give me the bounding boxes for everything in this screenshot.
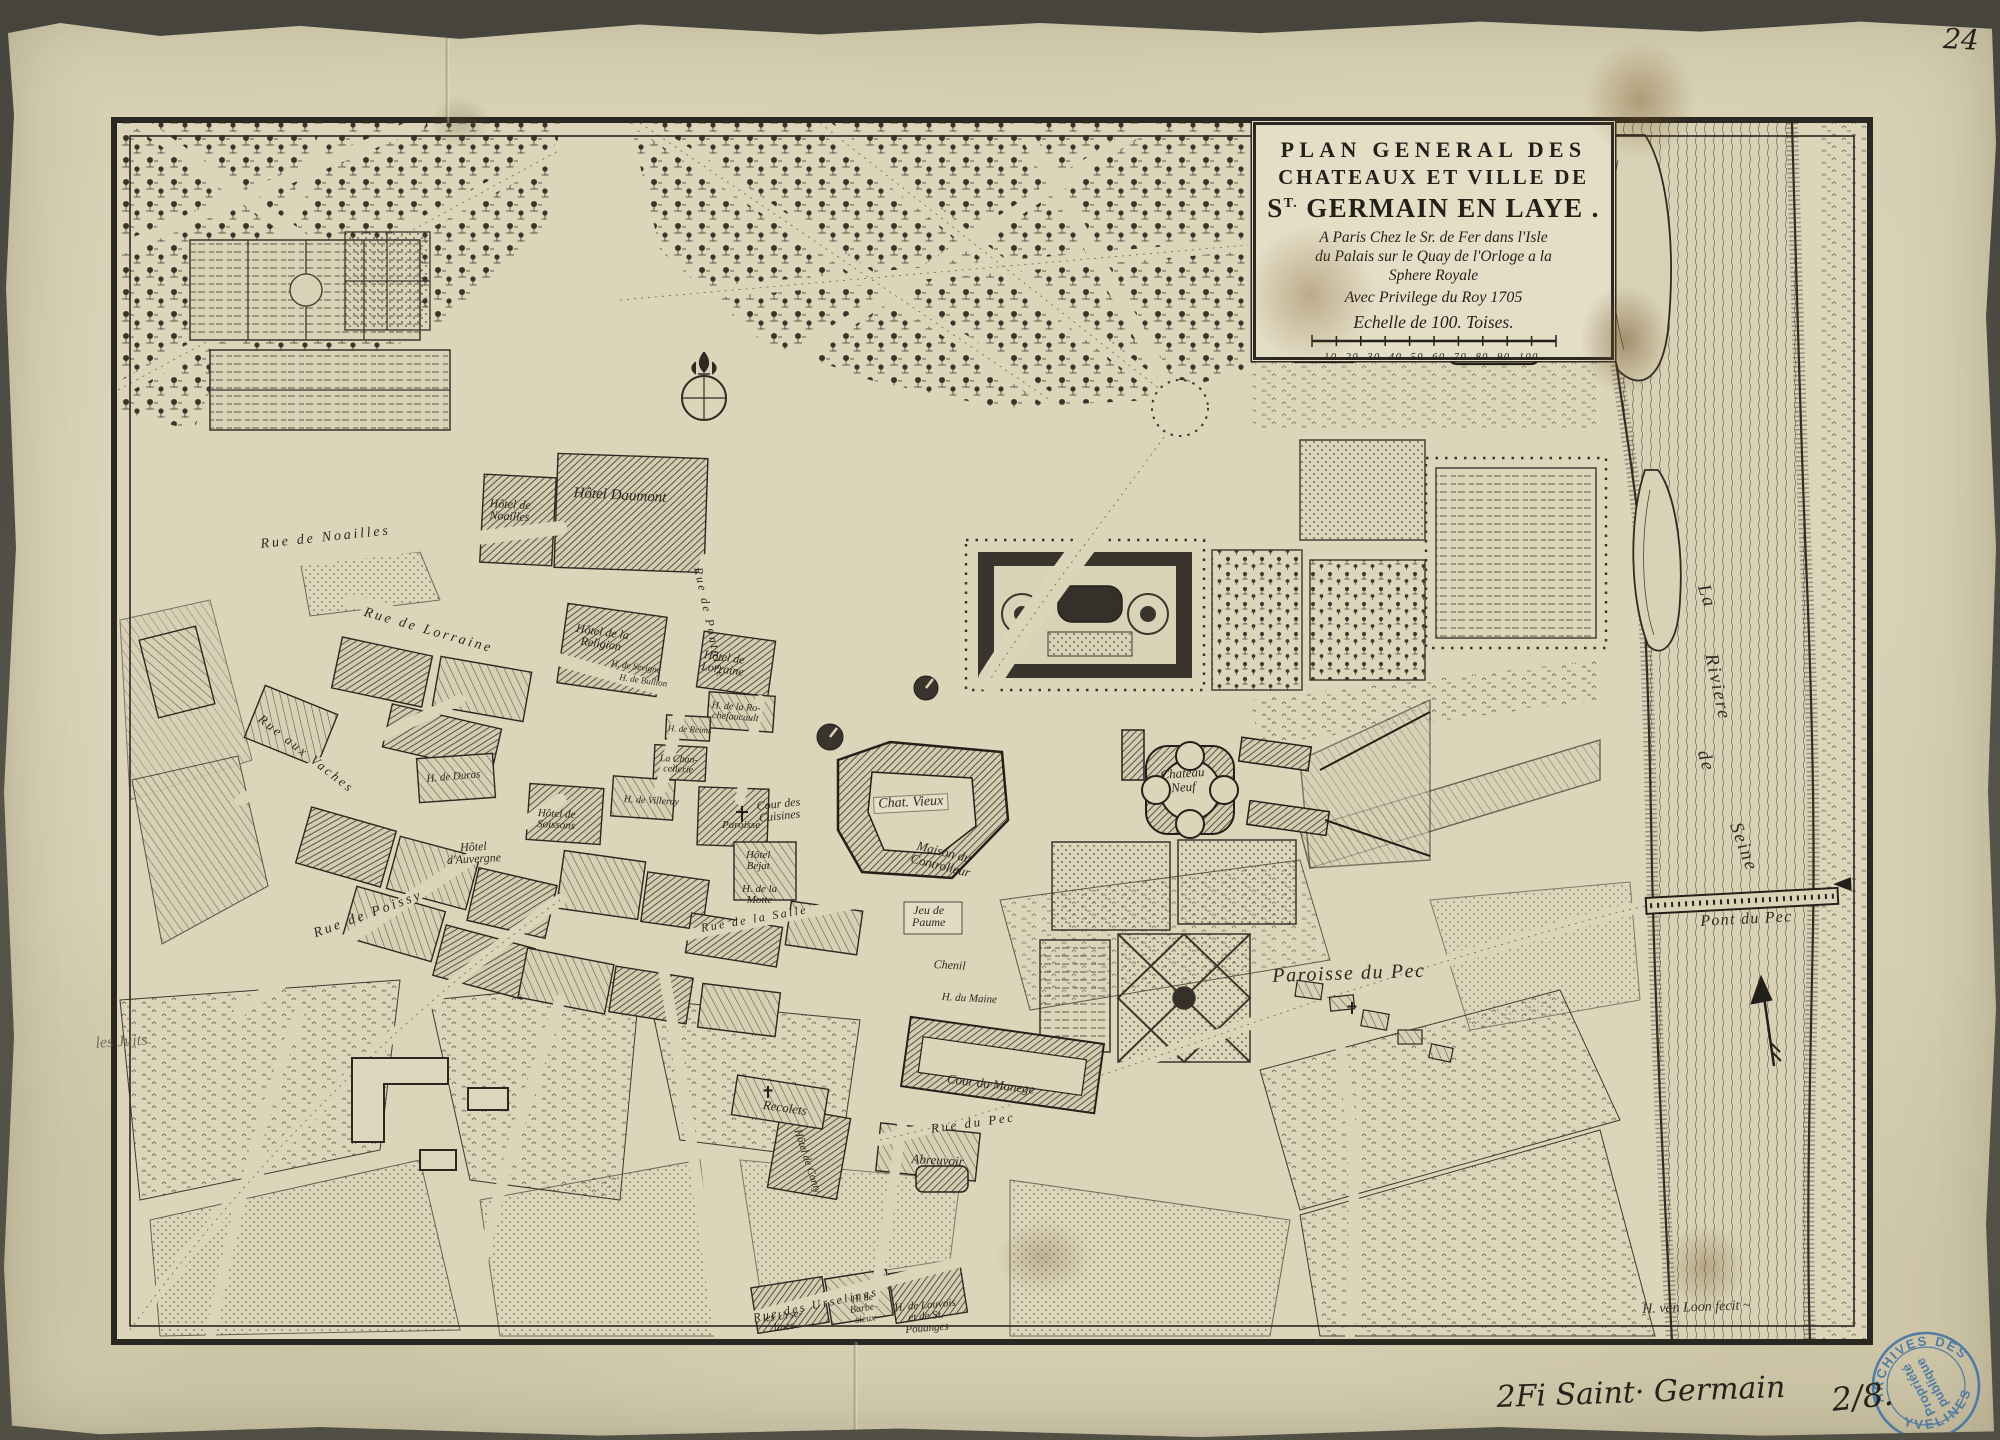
map-title-line2: CHATEAUX ET VILLE DE: [1256, 165, 1611, 190]
scale-label: Echelle de 100. Toises.: [1256, 312, 1611, 333]
imprint-line3: Sphere Royale: [1256, 267, 1611, 286]
title-st-rest: GERMAIN EN LAYE .: [1298, 193, 1600, 223]
engraved-map-artwork: [0, 0, 2000, 1440]
archives-stamp: ARCHIVES DES YVELINES Propriété publique: [1860, 1322, 1996, 1440]
compass-fleur-de-lis: [682, 352, 726, 420]
chateau-vieux: [817, 676, 1008, 878]
scanned-antique-map: PLAN GENERAL DES CHATEAUX ET VILLE DE ST…: [0, 0, 2000, 1440]
imprint-line1: A Paris Chez le Sr. de Fer dans l'Isle: [1256, 229, 1611, 248]
privilege-line: Avec Privilege du Roy 1705: [1256, 289, 1611, 307]
scale-numbers: 10. 20. 30. 40. 50. 60. 70. 80. 90. 100.: [1256, 352, 1611, 363]
map-title-line1: PLAN GENERAL DES: [1256, 137, 1611, 163]
noailles-gardens: [190, 232, 450, 430]
paper-sheet: PLAN GENERAL DES CHATEAUX ET VILLE DE ST…: [0, 0, 2000, 1440]
imprint-line2: du Palais sur le Quay de l'Orloge a la: [1256, 248, 1611, 267]
abreuvoir-pond: [916, 1166, 968, 1192]
map-title-line3: ST. GERMAIN EN LAYE .: [1256, 193, 1611, 224]
title-st-s: S: [1267, 193, 1283, 223]
title-st-sup: T.: [1284, 196, 1299, 211]
river-seine: [1593, 123, 1814, 1342]
scale-bar: [1304, 333, 1564, 349]
title-cartouche: PLAN GENERAL DES CHATEAUX ET VILLE DE ST…: [1253, 122, 1614, 360]
